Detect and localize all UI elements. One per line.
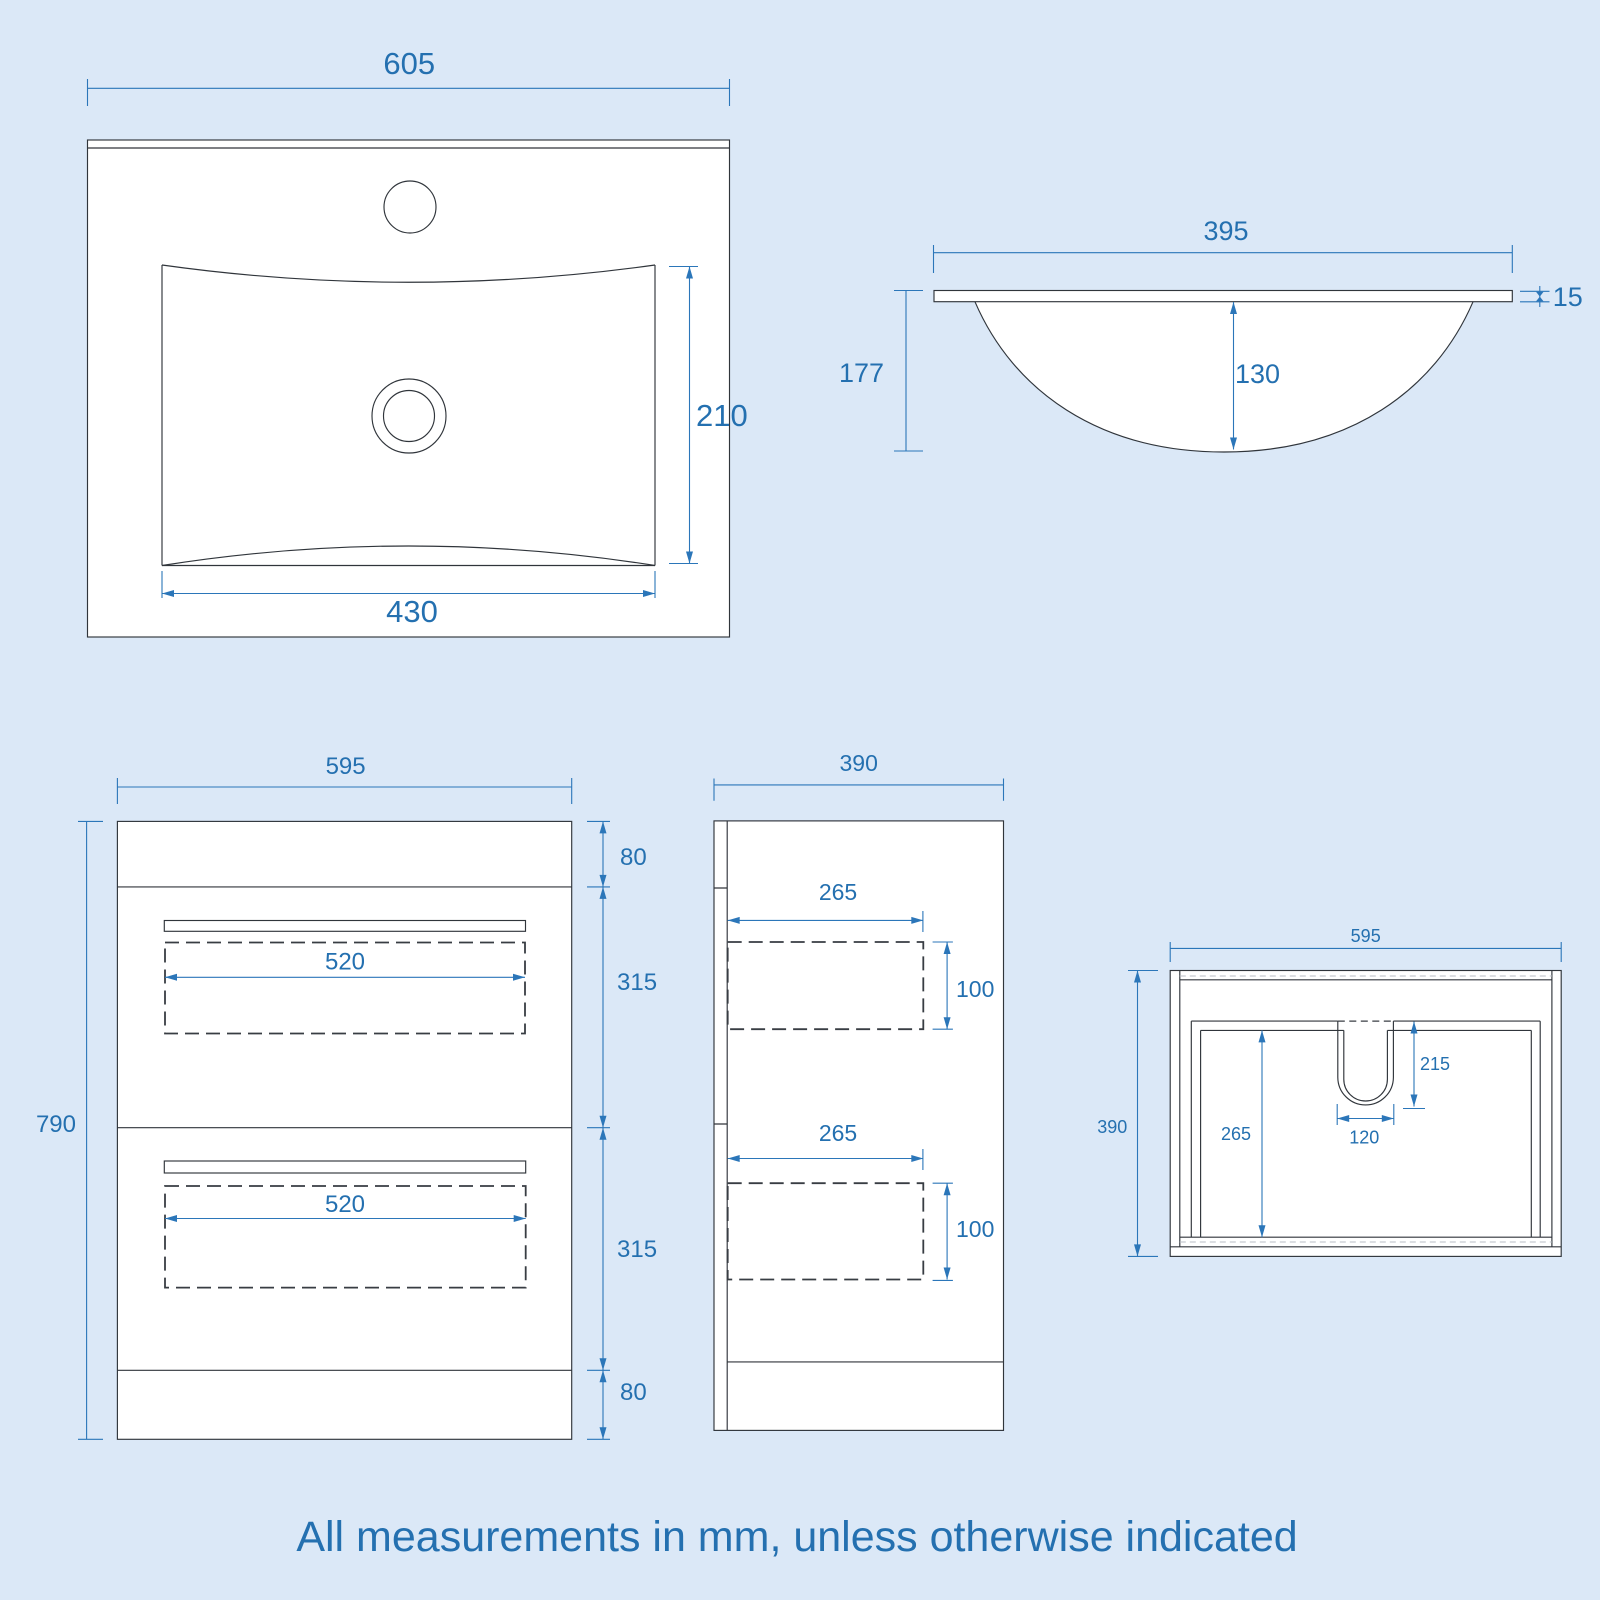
svg-text:595: 595 bbox=[1351, 926, 1381, 946]
svg-text:265: 265 bbox=[819, 879, 857, 905]
svg-text:215: 215 bbox=[1420, 1054, 1450, 1074]
svg-text:265: 265 bbox=[819, 1120, 857, 1146]
svg-text:390: 390 bbox=[1097, 1117, 1127, 1137]
svg-text:790: 790 bbox=[36, 1111, 76, 1138]
svg-text:390: 390 bbox=[840, 750, 878, 776]
svg-text:395: 395 bbox=[1203, 216, 1248, 246]
svg-text:520: 520 bbox=[325, 1191, 365, 1218]
svg-text:100: 100 bbox=[956, 976, 994, 1002]
svg-text:130: 130 bbox=[1235, 359, 1280, 389]
svg-text:520: 520 bbox=[325, 949, 365, 976]
svg-text:All measurements in mm, unless: All measurements in mm, unless otherwise… bbox=[296, 1513, 1297, 1561]
svg-text:595: 595 bbox=[326, 753, 366, 780]
svg-text:100: 100 bbox=[956, 1216, 994, 1242]
svg-text:265: 265 bbox=[1221, 1124, 1251, 1144]
svg-text:430: 430 bbox=[386, 594, 438, 629]
svg-text:15: 15 bbox=[1553, 282, 1583, 312]
svg-text:80: 80 bbox=[620, 1379, 647, 1406]
svg-text:315: 315 bbox=[617, 969, 657, 996]
svg-text:120: 120 bbox=[1349, 1128, 1379, 1148]
svg-text:80: 80 bbox=[620, 844, 647, 871]
svg-text:605: 605 bbox=[383, 46, 435, 81]
svg-text:177: 177 bbox=[839, 358, 884, 388]
svg-text:210: 210 bbox=[696, 398, 748, 433]
svg-text:315: 315 bbox=[617, 1236, 657, 1263]
